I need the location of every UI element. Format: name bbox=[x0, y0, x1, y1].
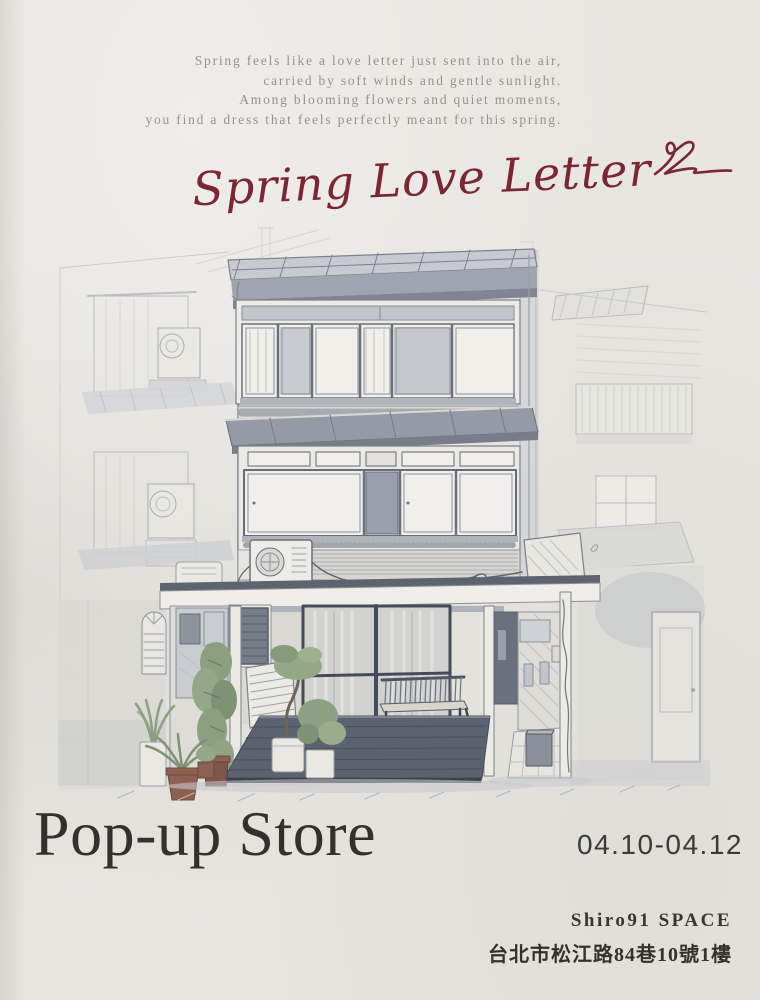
event-type-label: Pop-up Store bbox=[34, 802, 376, 866]
intro-line: carried by soft winds and gentle sunligh… bbox=[2, 71, 562, 91]
spring-poster: Spring feels like a love letter just sen… bbox=[0, 0, 760, 1000]
event-dates: 04.10-04.12 bbox=[577, 829, 743, 861]
deck-floor bbox=[223, 716, 490, 783]
heart-flourish-icon bbox=[652, 132, 740, 188]
venue-address: 台北市松江路84巷10號1樓 bbox=[488, 938, 732, 967]
intro-line: you find a dress that feels perfectly me… bbox=[2, 110, 562, 130]
storefront-canopy bbox=[160, 575, 600, 609]
venue-name: Shiro91 SPACE bbox=[571, 910, 732, 932]
paper-edge-shading bbox=[0, 0, 26, 1000]
side-alley bbox=[494, 592, 571, 778]
intro-line: Spring feels like a love letter just sen… bbox=[2, 51, 562, 71]
third-floor-windows bbox=[236, 300, 520, 405]
intro-verse: Spring feels like a love letter just sen… bbox=[2, 51, 562, 129]
arched-louver-window bbox=[142, 612, 166, 674]
intro-line: Among blooming flowers and quiet moments… bbox=[2, 90, 562, 110]
